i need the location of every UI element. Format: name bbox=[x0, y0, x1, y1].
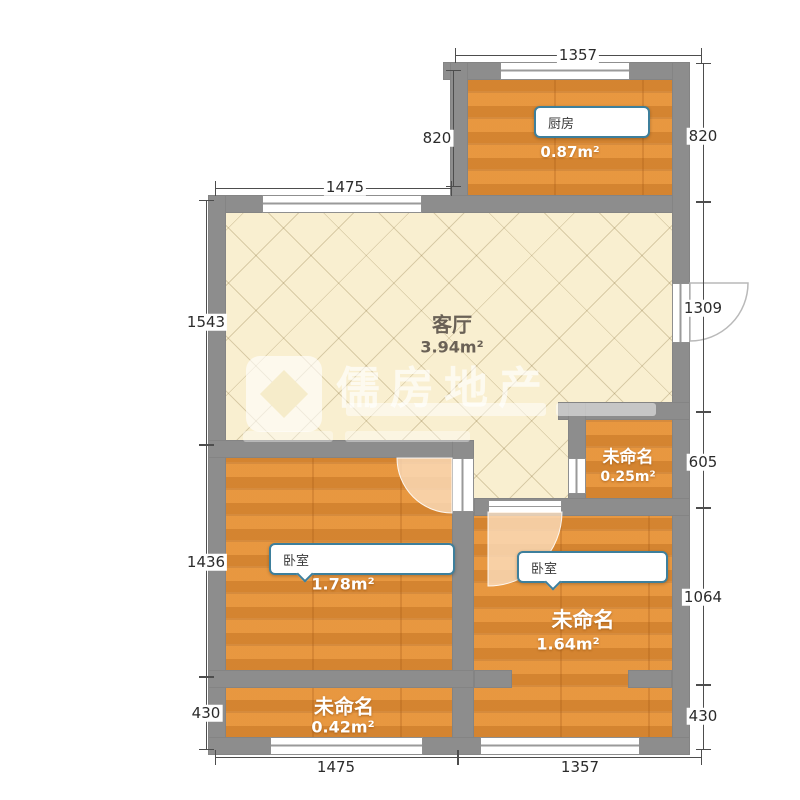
storage-opening bbox=[568, 458, 586, 494]
bedroom-left-area: 1.78m² bbox=[311, 575, 374, 594]
balcony-window bbox=[270, 737, 423, 755]
bedroom-right-name: 未命名 bbox=[552, 604, 615, 634]
living-room-name: 客厅 bbox=[432, 309, 472, 338]
wall-stub-right bbox=[628, 670, 672, 688]
dim-label-right-kitchen: 820 bbox=[687, 128, 720, 145]
dim-label-left-lower: 430 bbox=[190, 705, 223, 722]
storage-area: 0.25m² bbox=[600, 469, 655, 485]
bedroom-right-window bbox=[480, 737, 640, 755]
kitchen-window bbox=[500, 62, 630, 80]
bedroom-right-door-panel bbox=[488, 500, 562, 514]
wall-stub-left bbox=[474, 670, 512, 688]
living-room-window bbox=[262, 195, 422, 213]
bedroom-left-door-panel bbox=[452, 458, 474, 512]
bedroom-left-name-box[interactable]: 卧室 bbox=[269, 543, 455, 575]
dim-line-kitchen-left bbox=[453, 70, 454, 187]
bedroom-right-area: 1.64m² bbox=[536, 635, 599, 654]
bedroom-right-name-box[interactable]: 卧室 bbox=[517, 551, 668, 583]
dim-label-kitchen-left: 820 bbox=[421, 130, 454, 147]
dim-label-bottom-right: 1357 bbox=[559, 759, 601, 776]
dim-label-living-top: 1475 bbox=[324, 179, 366, 196]
dim-label-right-lower: 1064 bbox=[682, 589, 724, 606]
dim-label-left-mid: 1436 bbox=[185, 554, 227, 571]
dim-label-bottom-left: 1475 bbox=[315, 759, 357, 776]
floor-plan-canvas: 儒房地产 0.87m² 客厅 3.94m² 未命名 0.25m² 1.78m² … bbox=[0, 0, 800, 800]
dim-label-right-upper: 1309 bbox=[682, 300, 724, 317]
kitchen-name: 厨房 bbox=[548, 113, 574, 132]
balcony-area: 0.42m² bbox=[311, 718, 374, 737]
storage-name: 未命名 bbox=[603, 443, 654, 468]
dim-label-right-bottom: 430 bbox=[687, 708, 720, 725]
wall-living-bottom-left bbox=[208, 440, 474, 458]
dim-label-top: 1357 bbox=[557, 47, 599, 64]
dim-label-left-upper: 1543 bbox=[185, 314, 227, 331]
balcony-name: 未命名 bbox=[314, 691, 374, 720]
kitchen-area-label: 0.87m² bbox=[540, 143, 599, 161]
living-room-area: 3.94m² bbox=[420, 338, 483, 357]
dim-label-right-mid: 605 bbox=[687, 454, 720, 471]
wall-balcony-top bbox=[208, 670, 474, 688]
kitchen-name-box[interactable]: 厨房 bbox=[534, 106, 650, 138]
